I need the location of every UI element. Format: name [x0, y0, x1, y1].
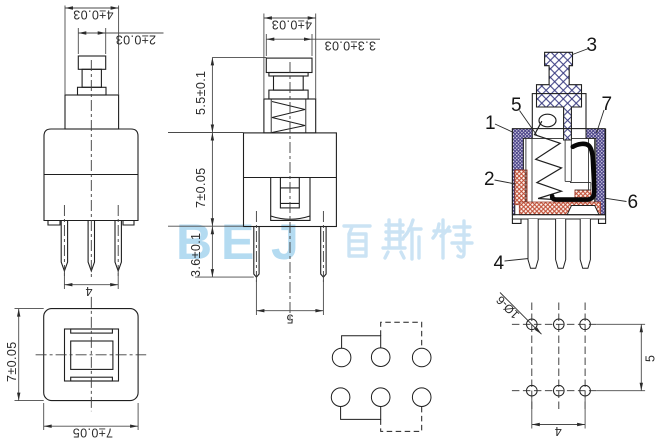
svg-text:2: 2 [484, 169, 495, 190]
svg-text:E: E [221, 214, 254, 270]
svg-text:3.6±0.1: 3.6±0.1 [189, 233, 203, 277]
svg-text:4±0.03: 4±0.03 [73, 8, 114, 22]
svg-text:5.5±0.1: 5.5±0.1 [194, 71, 208, 115]
svg-text:5: 5 [644, 355, 658, 362]
svg-text:7: 7 [602, 94, 613, 115]
svg-text:4: 4 [554, 424, 561, 438]
svg-text:5: 5 [286, 312, 293, 326]
svg-text:4: 4 [494, 253, 505, 274]
svg-text:2±0.03: 2±0.03 [115, 33, 156, 47]
svg-text:1: 1 [485, 113, 496, 134]
svg-text:7±0.05: 7±0.05 [194, 167, 208, 208]
svg-text:4±0.03: 4±0.03 [271, 18, 312, 32]
svg-text:J: J [271, 214, 299, 270]
svg-text:4: 4 [85, 284, 92, 298]
svg-text:3: 3 [587, 35, 598, 56]
svg-text:7±0.05: 7±0.05 [5, 341, 19, 382]
svg-text:3.3±0.03: 3.3±0.03 [324, 39, 376, 53]
svg-text:7±0.05: 7±0.05 [72, 426, 113, 440]
svg-text:5: 5 [511, 95, 522, 116]
svg-text:6: 6 [628, 192, 639, 213]
svg-text:1Ø-6: 1Ø-6 [493, 293, 522, 322]
